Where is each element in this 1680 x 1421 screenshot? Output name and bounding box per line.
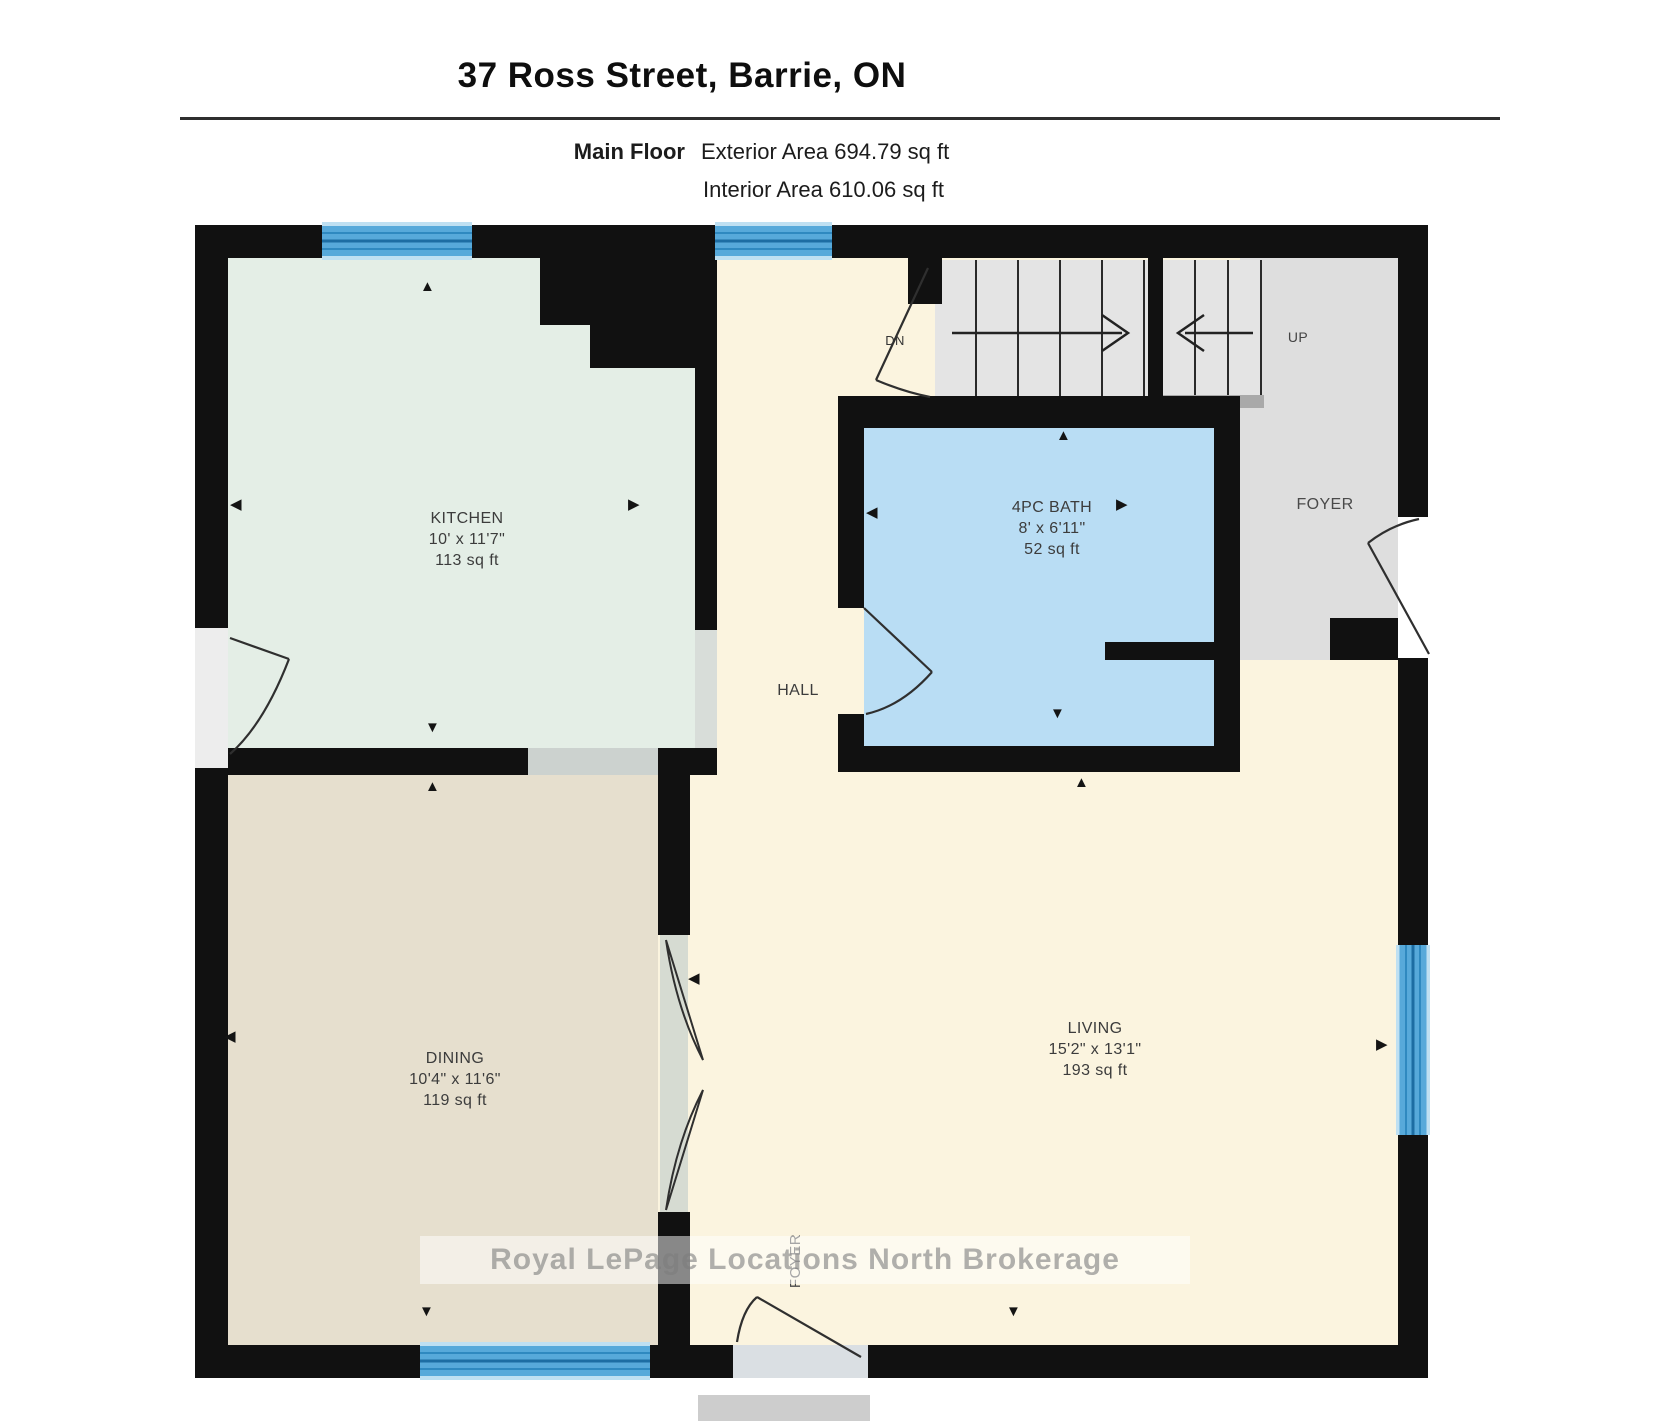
stairs-up-label: UP: [1280, 327, 1316, 348]
room-area: 193 sq ft: [995, 1060, 1195, 1081]
measure-arrow-down-icon: ▼: [1006, 1304, 1021, 1319]
room-name: LIVING: [995, 1018, 1195, 1039]
measure-arrow-up-icon: ▲: [1074, 775, 1089, 790]
measure-arrow-left-icon: ◀: [866, 505, 878, 520]
measure-arrow-up-icon: ▲: [425, 779, 440, 794]
bath-label: 4PC BATH 8' x 6'11" 52 sq ft: [952, 497, 1152, 560]
measure-arrow-up-icon: ▲: [1056, 428, 1071, 443]
brokerage-watermark: Royal LePage Locations North Brokerage: [420, 1236, 1190, 1284]
foyer-label: FOYER: [1255, 494, 1395, 515]
living-label: LIVING 15'2" x 13'1" 193 sq ft: [995, 1018, 1195, 1081]
room-area: 119 sq ft: [355, 1090, 555, 1111]
floorplan-page: { "header": { "title": "37 Ross Street, …: [0, 0, 1680, 1421]
dining-label: DINING 10'4" x 11'6" 119 sq ft: [355, 1048, 555, 1111]
room-name: HALL: [738, 680, 858, 701]
measure-arrow-down-icon: ▼: [425, 720, 440, 735]
room-area: 113 sq ft: [367, 550, 567, 571]
measure-arrow-left-icon: ◀: [230, 497, 242, 512]
measure-arrow-left-icon: ◀: [688, 971, 700, 986]
kitchen-label: KITCHEN 10' x 11'7" 113 sq ft: [367, 508, 567, 571]
room-dims: 10' x 11'7": [367, 529, 567, 550]
hall-label: HALL: [738, 680, 858, 701]
measure-arrow-down-icon: ▼: [1050, 706, 1065, 721]
measure-arrow-down-icon: ▼: [419, 1304, 434, 1319]
door-swings-and-stair-arrows: [0, 0, 1680, 1421]
room-name: DINING: [355, 1048, 555, 1069]
measure-arrow-up-icon: ▲: [420, 279, 435, 294]
room-area: 52 sq ft: [952, 539, 1152, 560]
measure-arrow-left-icon: ◀: [224, 1029, 236, 1044]
stairs-down-label: DN: [878, 330, 912, 351]
room-dims: 15'2" x 13'1": [995, 1039, 1195, 1060]
measure-arrow-right-icon: ▶: [628, 497, 640, 512]
room-name: FOYER: [1255, 494, 1395, 515]
room-dims: 10'4" x 11'6": [355, 1069, 555, 1090]
room-name: KITCHEN: [367, 508, 567, 529]
room-name: 4PC BATH: [952, 497, 1152, 518]
room-dims: 8' x 6'11": [952, 518, 1152, 539]
measure-arrow-right-icon: ▶: [1376, 1037, 1388, 1052]
